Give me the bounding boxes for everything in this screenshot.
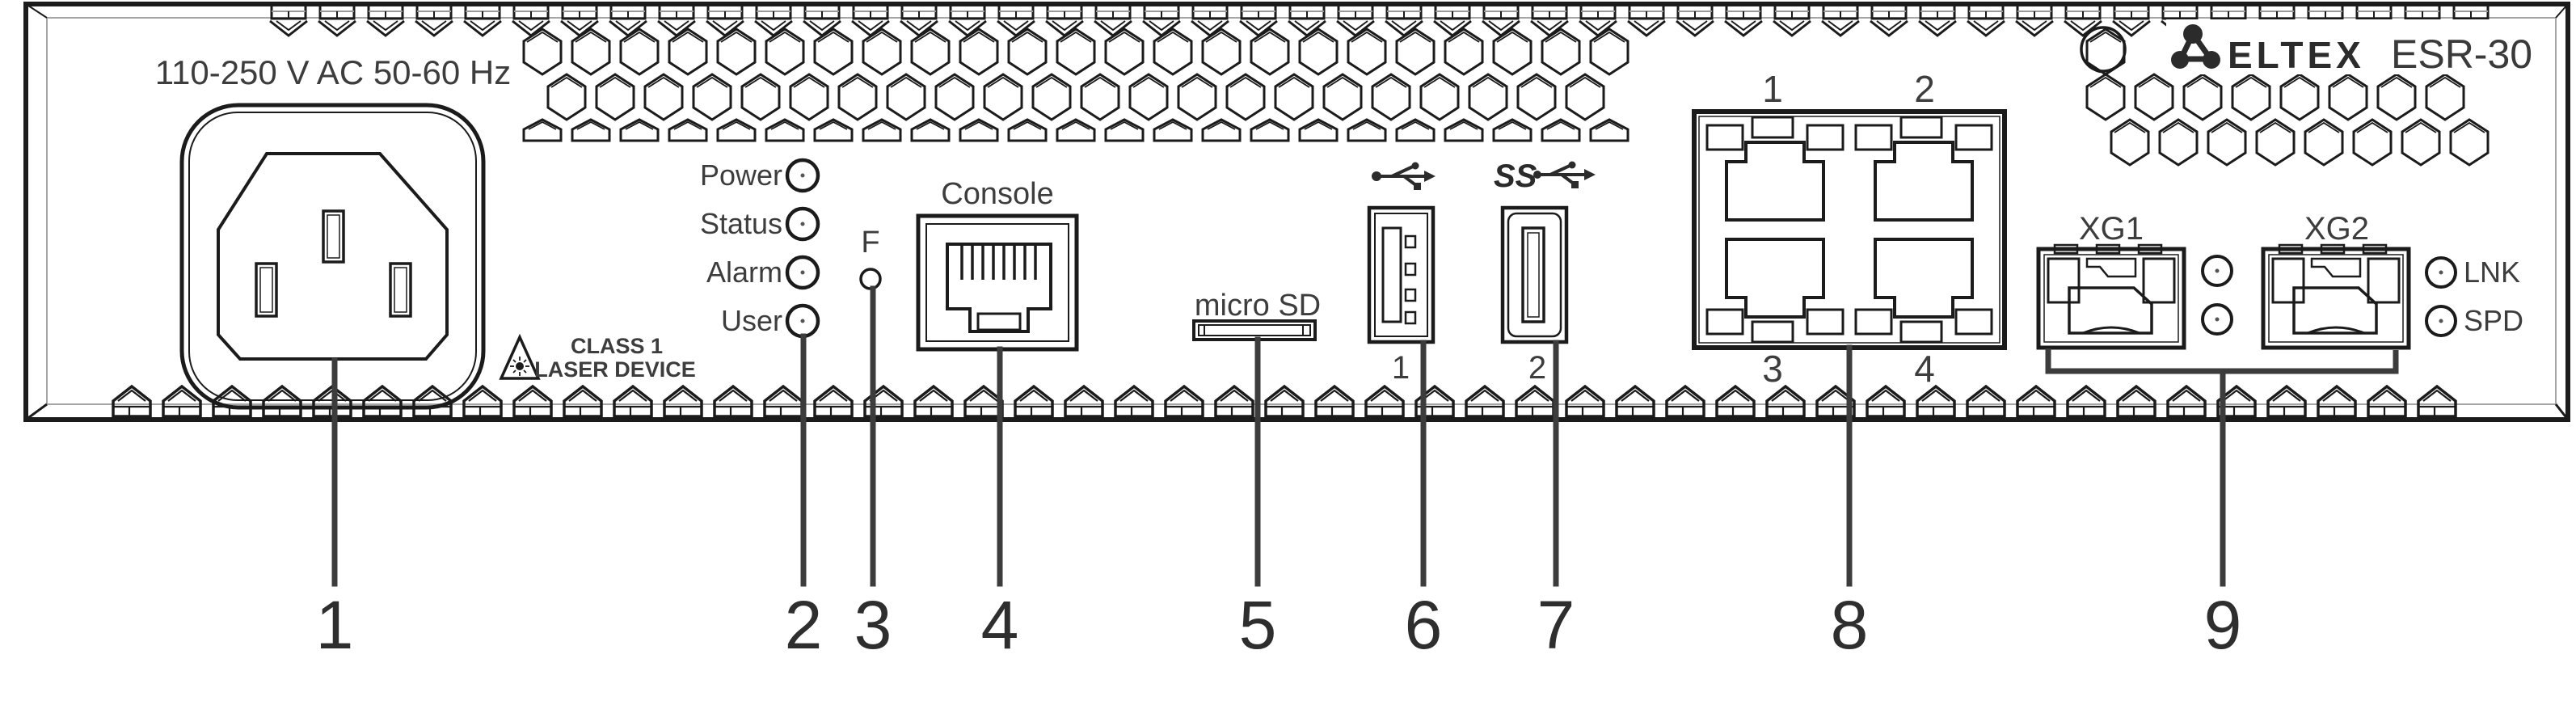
inlet-outline-inner <box>189 112 476 400</box>
chevron-vent <box>1919 21 1956 36</box>
callout-number-9: 9 <box>2204 587 2242 663</box>
sfp-cage-xg2[interactable] <box>2263 245 2409 348</box>
function-button-label: F <box>861 226 879 260</box>
usb-contacts <box>1406 236 1415 323</box>
hex-vent <box>2087 74 2124 120</box>
hex-vent <box>2305 120 2342 165</box>
callout-number-4: 4 <box>981 587 1019 663</box>
hex-vent <box>839 74 876 120</box>
chevron-vent <box>1725 21 1762 36</box>
chevron-vent <box>1967 21 2005 36</box>
hex-vent <box>791 74 828 120</box>
sfp-cage-inner <box>2269 255 2403 342</box>
eth-port-4[interactable] <box>1856 239 1992 342</box>
eth-port-3[interactable] <box>1707 239 1843 342</box>
inlet-pin-slots <box>256 211 411 316</box>
hex-vent <box>2354 120 2391 165</box>
sfp-cage-xg1[interactable] <box>2038 245 2184 348</box>
led-label-power: Power <box>700 158 782 192</box>
chevron-vent <box>2016 21 2053 36</box>
eth-label-1: 1 <box>1762 68 1783 110</box>
hex-vent <box>766 29 803 74</box>
hex-vent <box>669 29 706 74</box>
chevron-vent <box>1822 21 1859 36</box>
callout-number-6: 6 <box>1405 587 1443 663</box>
hex-vent <box>2111 120 2148 165</box>
usb-tongue <box>1383 228 1401 322</box>
eth-label-2: 2 <box>1914 68 1935 110</box>
hex-vent <box>742 74 779 120</box>
eth-port-1[interactable] <box>1707 117 1843 220</box>
hex-vent <box>1372 74 1410 120</box>
rj45-latch <box>978 314 1020 330</box>
laser-warning-line1: CLASS 1 <box>571 334 663 358</box>
chevron-vent <box>270 21 307 36</box>
callout-number-8: 8 <box>1831 587 1869 663</box>
hex-vent <box>2329 74 2367 120</box>
lnk-led-label: LNK <box>2464 255 2520 289</box>
hex-vent <box>1566 74 1604 120</box>
hex-vent <box>2160 120 2197 165</box>
hex-vent <box>984 74 1022 120</box>
ethernet-port-block[interactable]: 1 2 3 4 <box>1694 68 2005 390</box>
callout-number-1: 1 <box>316 587 354 663</box>
callout-number-5: 5 <box>1239 587 1277 663</box>
hex-vent <box>1106 29 1143 74</box>
hex-vent <box>2257 120 2294 165</box>
sfp-emi-right <box>2368 259 2399 302</box>
hex-vent <box>1348 29 1385 74</box>
callout-number-3: 3 <box>854 587 892 663</box>
hex-vent <box>815 29 852 74</box>
hex-vent <box>597 74 634 120</box>
top-vent-tabs <box>270 4 2490 36</box>
xg2-label: XG2 <box>2304 211 2369 247</box>
sfp-emi-left <box>2273 259 2304 302</box>
hex-vent <box>1130 74 1167 120</box>
hex-vent <box>1057 29 1094 74</box>
spd-led-label: SPD <box>2464 304 2523 337</box>
hex-vent <box>887 74 925 120</box>
hex-vent <box>2378 74 2415 120</box>
sfp-cage-inner <box>2044 255 2178 342</box>
rj45-pins <box>962 244 1035 280</box>
hex-vent <box>1033 74 1070 120</box>
callout-numbers: 123456789 <box>316 587 2242 663</box>
console-port-label: Console <box>941 177 1053 211</box>
usb1-label: 1 <box>1392 350 1410 386</box>
sfp-top-notch <box>2087 259 2135 277</box>
hex-vent <box>2232 74 2270 120</box>
hex-vent <box>572 29 609 74</box>
xg1-label: XG1 <box>2079 211 2144 247</box>
hex-vent <box>1178 74 1216 120</box>
brand-name: ELTEX <box>2228 34 2365 76</box>
hex-vent <box>1081 74 1119 120</box>
callout9-bracket <box>2048 348 2396 371</box>
hex-vent <box>1009 29 1046 74</box>
hex-vent <box>645 74 682 120</box>
hex-vent <box>1251 29 1288 74</box>
esr30-front-panel-diagram: ELTEX ESR-30 110-250 V AC 50-60 Hz CLASS… <box>0 0 2576 705</box>
chevron-vent <box>464 21 501 36</box>
chevron-vent <box>1676 21 1714 36</box>
usb-3.0-ss-icon: SS <box>1494 158 1596 194</box>
hex-vent <box>1154 29 1191 74</box>
led-label-alarm: Alarm <box>706 255 782 289</box>
inlet-face <box>218 154 447 359</box>
callout-number-7: 7 <box>1537 587 1575 663</box>
usb2-label: 2 <box>1528 350 1546 386</box>
usb-port-2[interactable]: SS 2 <box>1494 158 1596 386</box>
hex-vent <box>1542 29 1579 74</box>
hex-vent <box>1397 29 1434 74</box>
laser-warning-line2: LASER DEVICE <box>534 357 696 382</box>
hex-vent <box>2208 120 2245 165</box>
eth-port-2[interactable] <box>1856 117 1992 220</box>
usb3-slot <box>1523 228 1544 322</box>
usb-2.0-icon <box>1372 163 1436 191</box>
hex-vent <box>1445 29 1482 74</box>
hex-vent <box>1421 74 1458 120</box>
ac-power-inlet: 110-250 V AC 50-60 Hz <box>155 53 512 407</box>
hex-vent <box>1275 74 1313 120</box>
callout-leader-lines <box>335 289 2223 584</box>
function-button-hole[interactable] <box>861 269 880 289</box>
chevron-vent <box>1628 21 1665 36</box>
hex-vent <box>960 29 997 74</box>
laser-warning: CLASS 1 LASER DEVICE <box>501 334 696 382</box>
hex-vent <box>936 74 973 120</box>
led-label-user: User <box>721 304 782 337</box>
hex-vent <box>621 29 658 74</box>
hex-vent <box>1591 29 1628 74</box>
power-rating-label: 110-250 V AC 50-60 Hz <box>155 53 512 91</box>
chevron-vent <box>415 21 453 36</box>
sfp-top-notch <box>2312 259 2360 277</box>
hex-vent <box>2451 120 2488 165</box>
hex-vent <box>1227 74 1264 120</box>
status-leds: Power Status Alarm User <box>700 158 818 337</box>
chevron-vent <box>367 21 404 36</box>
callout-number-2: 2 <box>785 587 823 663</box>
hex-vent <box>1494 29 1531 74</box>
honeycomb-grille-center <box>524 29 1628 141</box>
hex-vent <box>912 29 949 74</box>
chevron-vent <box>318 21 356 36</box>
hex-vent <box>2135 74 2173 120</box>
eth-label-4: 4 <box>1914 348 1935 390</box>
hex-vent <box>1324 74 1361 120</box>
hex-vent <box>2426 74 2464 120</box>
chevron-vent <box>1773 21 1811 36</box>
hex-vent <box>524 29 561 74</box>
sfp-emi-right <box>2144 259 2174 302</box>
hex-vent <box>1300 29 1337 74</box>
hex-vent <box>2281 74 2318 120</box>
hex-vent <box>1469 74 1507 120</box>
hex-vent <box>2402 120 2439 165</box>
hex-vent <box>1518 74 1555 120</box>
microsd-label: micro SD <box>1195 289 1321 323</box>
hex-vent <box>1203 29 1240 74</box>
led-label-status: Status <box>700 207 782 240</box>
function-button[interactable]: F <box>861 226 880 289</box>
microsd-slot[interactable]: micro SD <box>1194 289 1321 340</box>
sfp-ports: XG1 XG2 LNK SPD <box>2038 211 2523 348</box>
svg-text:SS: SS <box>1494 158 1537 194</box>
chevron-vent <box>1870 21 1908 36</box>
hex-vent <box>548 74 585 120</box>
sfp-emi-left <box>2048 259 2079 302</box>
model-name: ESR-30 <box>2391 32 2532 77</box>
hex-vent <box>694 74 731 120</box>
hex-vent <box>2184 74 2221 120</box>
hex-vent <box>863 29 900 74</box>
eth-label-3: 3 <box>1762 348 1783 390</box>
console-port[interactable]: Console <box>918 177 1077 349</box>
hex-vent <box>718 29 755 74</box>
